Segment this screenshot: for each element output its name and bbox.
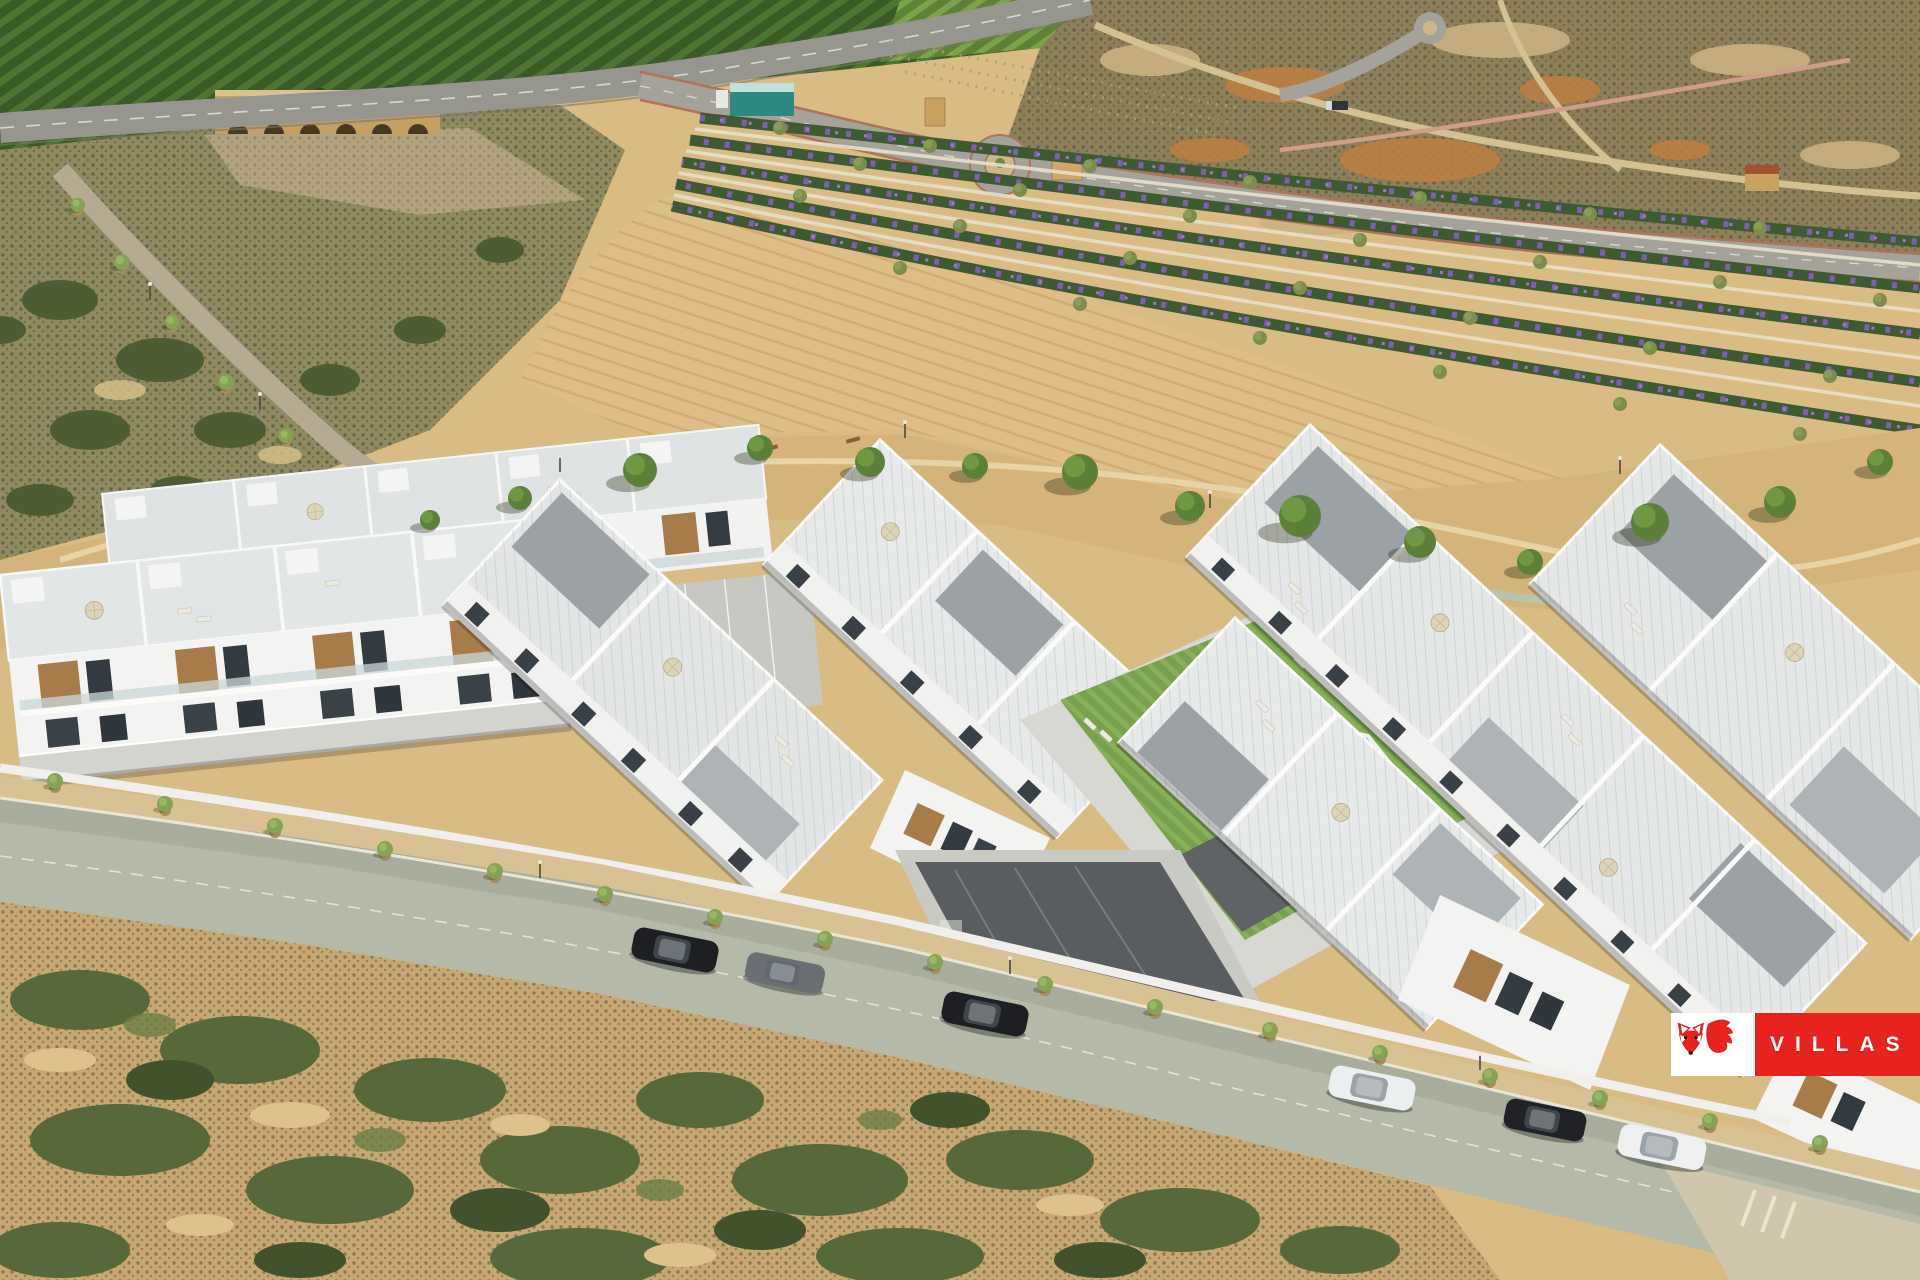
- scene-canvas: [0, 0, 1920, 1280]
- logo-red-band: VILLAS: [1755, 1013, 1920, 1076]
- parked-truck: [1326, 101, 1348, 110]
- logo-white-box: [1671, 1013, 1755, 1076]
- villas-watermark-logo: VILLAS: [1671, 1013, 1920, 1076]
- logo-text: VILLAS: [1770, 1033, 1911, 1057]
- fox-icon: [1671, 1013, 1737, 1069]
- aerial-photo: VILLAS: [0, 0, 1920, 1280]
